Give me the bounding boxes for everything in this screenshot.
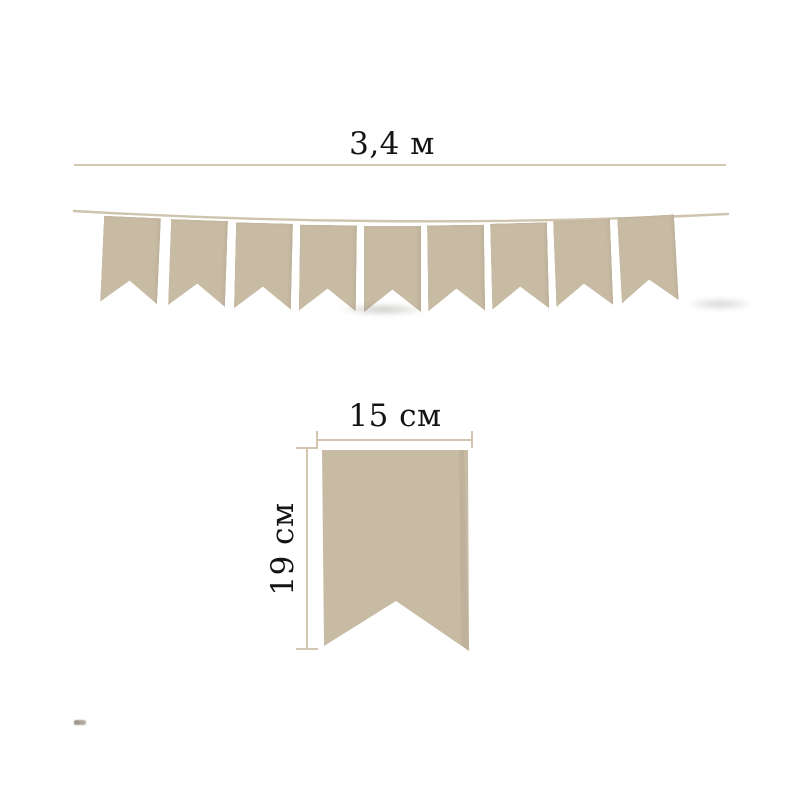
flag-width-dimension-line (317, 439, 473, 441)
pennant-flag (100, 216, 161, 304)
flag-width-tick-right (471, 431, 473, 448)
pennant-flag (427, 225, 485, 312)
flag-height-tick-top (296, 447, 318, 449)
pennant-flag (234, 222, 293, 309)
flag-detail-shape (318, 448, 473, 654)
shadow-smudge (338, 303, 428, 316)
pennant-flag (490, 222, 549, 309)
product-dimension-diagram: 3,4 м 15 см 19 см (0, 0, 800, 800)
shadow-smudge (686, 297, 754, 311)
pennant-flag (299, 225, 357, 312)
flag-width-label: 15 см (320, 398, 470, 434)
flag-width-tick-left (316, 431, 318, 448)
flag-height-label: 19 см (267, 494, 299, 604)
pennant-flag (553, 219, 613, 307)
flag-height-tick-bottom (296, 648, 318, 650)
photo-artifact (74, 720, 86, 725)
pennant-flag (168, 219, 228, 307)
pennant-flag (364, 226, 421, 312)
flag-height-dimension-line (306, 448, 308, 649)
pennant-garland (0, 0, 800, 340)
pennant-flag (617, 214, 679, 303)
